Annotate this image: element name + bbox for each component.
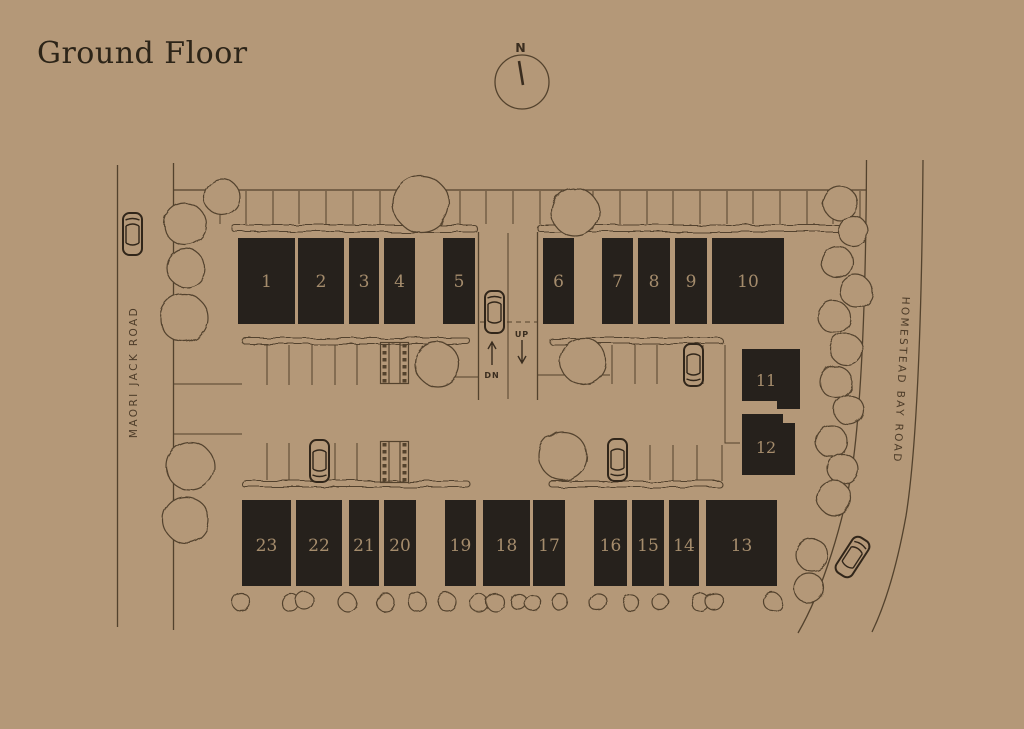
- unit-19-label: 19: [450, 536, 472, 556]
- unit-15: 15: [632, 500, 664, 586]
- bush-icon: [652, 594, 668, 610]
- unit-7: 7: [602, 238, 633, 324]
- unit-12: 12: [742, 414, 795, 475]
- unit-3: 3: [349, 238, 379, 324]
- tree-icon: [820, 366, 852, 398]
- tree-icon: [204, 179, 240, 215]
- tree-icon: [166, 442, 214, 490]
- unit-9: 9: [675, 238, 707, 324]
- unit-8-label: 8: [649, 272, 660, 292]
- left-road-label: MAORI JACK ROAD: [128, 306, 140, 438]
- bush-icon: [470, 594, 488, 612]
- car-icon: [684, 344, 703, 386]
- tree-icon: [539, 432, 587, 480]
- unit-11: 11: [742, 349, 800, 409]
- unit-17: 17: [533, 500, 565, 586]
- bush-icon: [338, 593, 356, 611]
- bush-icon: [377, 594, 395, 612]
- tree-icon: [818, 301, 850, 333]
- unit-14: 14: [669, 500, 699, 586]
- unit-18-label: 18: [496, 536, 518, 556]
- unit-8: 8: [638, 238, 670, 324]
- unit-20: 20: [384, 500, 416, 586]
- unit-2-label: 2: [316, 272, 327, 292]
- bush-icon: [589, 593, 607, 611]
- unit-1: 1: [238, 238, 295, 324]
- unit-23: 23: [242, 500, 291, 586]
- unit-22-label: 22: [308, 536, 330, 556]
- unit-3-label: 3: [359, 272, 370, 292]
- tree-icon: [167, 249, 205, 287]
- tree-icon: [393, 176, 449, 232]
- unit-13: 13: [706, 500, 777, 586]
- car-icon: [310, 440, 329, 482]
- unit-12-label: 12: [756, 438, 776, 457]
- page-title: Ground Floor: [37, 36, 248, 71]
- tree-icon: [823, 186, 857, 220]
- car-icon: [485, 291, 504, 333]
- unit-5: 5: [443, 238, 475, 324]
- bush-icon: [232, 593, 250, 611]
- unit-10-label: 10: [737, 272, 759, 292]
- tree-icon: [794, 573, 824, 603]
- tree-icon: [828, 454, 858, 484]
- tree-icon: [821, 246, 853, 278]
- compass-north-label: N: [515, 40, 526, 55]
- ramp-up-label: UP: [515, 330, 529, 339]
- tree-icon: [415, 342, 459, 386]
- unit-4-label: 4: [394, 272, 405, 292]
- unit-13-label: 13: [731, 536, 753, 556]
- unit-10: 10: [712, 238, 784, 324]
- unit-16-label: 16: [600, 536, 622, 556]
- unit-4: 4: [384, 238, 415, 324]
- unit-19: 19: [445, 500, 476, 586]
- unit-23-label: 23: [256, 536, 278, 556]
- tree-icon: [163, 497, 209, 543]
- tree-icon: [551, 188, 599, 236]
- bush-icon: [525, 595, 541, 611]
- plan-background: [0, 0, 1024, 729]
- unit-22: 22: [296, 500, 342, 586]
- unit-6-label: 6: [553, 272, 564, 292]
- car-icon: [123, 213, 142, 255]
- unit-5-label: 5: [454, 272, 465, 292]
- unit-14-label: 14: [673, 536, 695, 556]
- unit-9-label: 9: [686, 272, 697, 292]
- unit-21-label: 21: [353, 536, 375, 556]
- tree-icon: [838, 216, 868, 246]
- unit-2: 2: [298, 238, 344, 324]
- unit-16: 16: [594, 500, 627, 586]
- tree-icon: [560, 338, 606, 384]
- unit-6: 6: [543, 238, 574, 324]
- tree-icon: [164, 203, 206, 245]
- tree-icon: [840, 275, 872, 307]
- tree-icon: [815, 425, 847, 457]
- unit-7-label: 7: [612, 272, 623, 292]
- bush-icon: [764, 593, 782, 611]
- bush-icon: [623, 595, 639, 611]
- unit-17-label: 17: [538, 536, 560, 556]
- units-bottom-row: 23 22 21 20 19 18 17 16 15 14 13: [242, 500, 777, 586]
- site-plan: Ground Floor N MAORI JACK ROAD HOMESTEAD…: [0, 0, 1024, 729]
- bush-icon: [408, 593, 426, 611]
- tree-icon: [796, 539, 828, 571]
- unit-18: 18: [483, 500, 530, 586]
- unit-11-label: 11: [756, 371, 776, 390]
- ramp-down-label: DN: [484, 371, 499, 380]
- unit-21: 21: [349, 500, 379, 586]
- bush-icon: [552, 594, 568, 610]
- unit-15-label: 15: [637, 536, 659, 556]
- bush-icon: [706, 593, 724, 611]
- car-icon: [608, 439, 627, 481]
- bush-icon: [438, 593, 456, 611]
- tree-icon: [834, 395, 864, 425]
- tree-icon: [830, 333, 862, 365]
- tree-icon: [817, 481, 851, 515]
- unit-20-label: 20: [389, 536, 411, 556]
- unit-1-label: 1: [261, 272, 272, 292]
- bush-icon: [486, 593, 504, 611]
- tree-icon: [160, 294, 208, 342]
- bush-icon: [296, 592, 314, 610]
